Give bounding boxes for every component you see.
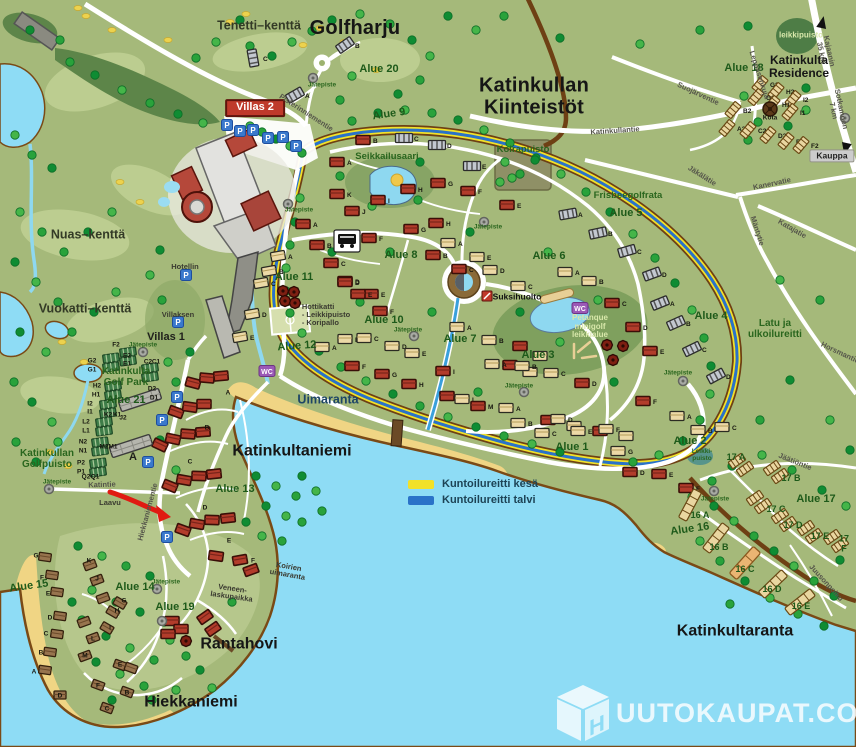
map-label: Q2 bbox=[82, 473, 91, 480]
map-label: Hiekkaniemi bbox=[144, 693, 237, 710]
map-label: H1 bbox=[92, 391, 100, 398]
map-label: E2 bbox=[123, 352, 131, 359]
map-label: I bbox=[109, 624, 111, 631]
map-label: Villaksen bbox=[162, 311, 194, 319]
map-label: Hottikatti - Leikkipuisto - Koripallo bbox=[302, 303, 350, 327]
map-label: P1 bbox=[77, 468, 85, 475]
map-label: Leikki- puisto bbox=[692, 448, 713, 462]
map-label: Jätepiste bbox=[43, 478, 71, 485]
map-label: N1 bbox=[79, 447, 87, 454]
map-label: C bbox=[188, 458, 193, 465]
map-label: E bbox=[227, 537, 231, 544]
map-label: Kauppa bbox=[809, 149, 854, 162]
map-label: C bbox=[105, 705, 110, 712]
map-label: Alue 6 bbox=[532, 251, 565, 263]
map-label: J2 bbox=[119, 414, 126, 421]
map-label: Koirapuisto bbox=[497, 145, 550, 155]
map-label: Katinkullan Kiinteistöt bbox=[479, 75, 589, 118]
map-label: Jätepiste bbox=[505, 382, 533, 389]
map-canvas: BCABACDEGHFKIJEABCDEFGHABCDEABCDABCDABCC… bbox=[0, 0, 856, 747]
map-label: Alue 11 bbox=[275, 272, 314, 284]
map-label: Veneen- laskupaikka bbox=[210, 582, 254, 604]
logo-cube-icon: H bbox=[556, 684, 610, 742]
map-label: Alue 17 bbox=[796, 494, 835, 506]
trail-legend: Kuntoilureitti kesä Kuntoilureitti talvi bbox=[408, 478, 538, 510]
map-label: F2 bbox=[112, 341, 120, 348]
map-label: Katinkulta Residence bbox=[769, 54, 829, 80]
map-label: M1 bbox=[108, 443, 117, 450]
map-label: Alue 15 bbox=[9, 578, 49, 595]
map-label: Suojärventie bbox=[676, 81, 720, 107]
map-label: B bbox=[39, 649, 44, 656]
map-label: leikkipuisto bbox=[779, 32, 823, 41]
map-label: Villas 1 bbox=[147, 332, 185, 344]
map-label: Alue 2 bbox=[673, 436, 706, 448]
map-label: F bbox=[251, 557, 255, 564]
map-label: L2 bbox=[82, 418, 90, 425]
map-labels-layer: GolfharjuTenetti–kenttäAlue 20Katinkulla… bbox=[0, 0, 856, 747]
map-label: Koirien uimaranta bbox=[269, 560, 307, 582]
map-label: Kanervatie bbox=[752, 176, 791, 192]
map-label: 17 A bbox=[727, 453, 746, 463]
map-label: Suksihuolto bbox=[493, 292, 542, 301]
map-label: 17 D bbox=[783, 521, 802, 531]
map-label: Katinkultaranta bbox=[677, 622, 793, 639]
map-label: Juusonpolku bbox=[807, 563, 844, 603]
map-label: Hiekkaniementie bbox=[136, 482, 159, 541]
map-label: 16 E bbox=[792, 602, 811, 612]
map-label: Pisterinniementie bbox=[278, 93, 335, 134]
map-label: K1 bbox=[113, 411, 121, 418]
map-label: Jätepiste bbox=[664, 369, 692, 376]
map-label: H2 bbox=[93, 382, 101, 389]
map-label: Jätepiste bbox=[129, 341, 157, 348]
legend-winter-label: Kuntoilureitti talvi bbox=[442, 494, 536, 506]
map-label: Laavu bbox=[99, 499, 121, 507]
summer-trail-swatch bbox=[408, 480, 434, 489]
map-label: A bbox=[129, 452, 137, 464]
map-label: Alue 12 bbox=[277, 340, 317, 355]
map-label: 17 E bbox=[811, 532, 830, 542]
map-label: A bbox=[226, 389, 231, 396]
map-label: Katinkullan Golfpuisto bbox=[20, 449, 74, 471]
map-label: Latu ja ulkoilureitti bbox=[748, 319, 802, 341]
map-label: Alue 16 bbox=[670, 521, 710, 538]
map-label: D1 bbox=[150, 394, 158, 401]
map-label: Jäkälätie bbox=[686, 164, 717, 188]
map-label: Jätepiste bbox=[701, 495, 729, 502]
map-label: E1 bbox=[123, 360, 131, 367]
map-label: Vuokatti–kenttä bbox=[39, 302, 132, 316]
legend-winter-row: Kuntoilureitti talvi bbox=[408, 494, 538, 506]
map-label: C2 bbox=[144, 358, 152, 365]
map-label: Alue 13 bbox=[215, 484, 254, 496]
map-label: Rantahovi bbox=[200, 635, 277, 652]
map-label: 16 C bbox=[735, 565, 754, 575]
map-label: 17 C bbox=[766, 505, 785, 515]
map-label: Alue 3 bbox=[521, 350, 554, 362]
legend-summer-row: Kuntoilureitti kesä bbox=[408, 478, 538, 490]
map-label: D bbox=[203, 504, 208, 511]
map-label: G bbox=[121, 597, 126, 604]
map-label: Kota bbox=[763, 114, 777, 121]
winter-trail-swatch bbox=[408, 496, 434, 505]
map-label: Alue 20 bbox=[359, 64, 398, 76]
map-label: Jätepiste bbox=[152, 578, 180, 585]
map-label: Horsmantie bbox=[820, 341, 856, 366]
map-label: Seikkailusaari bbox=[355, 152, 418, 162]
map-label: 16 D bbox=[762, 585, 781, 595]
map-label: Katajatie bbox=[776, 218, 807, 241]
map-label: D bbox=[48, 614, 53, 621]
map-label: Jätepiste bbox=[474, 223, 502, 230]
map-label: M2 bbox=[99, 443, 108, 450]
map-label: 17 B bbox=[781, 474, 800, 484]
logo-text: UUTOKAUPAT.COM bbox=[616, 698, 856, 729]
map-label: Tenetti–kenttä bbox=[217, 19, 301, 33]
map-label: I1 bbox=[87, 408, 92, 415]
map-label: Hotellin bbox=[171, 263, 199, 271]
map-label: C1 bbox=[152, 358, 160, 365]
map-label: 16 B bbox=[709, 543, 728, 553]
map-label: L bbox=[91, 635, 95, 642]
legend-summer-label: Kuntoilureitti kesä bbox=[442, 478, 538, 490]
map-label: Alue 9 bbox=[372, 107, 406, 123]
map-label: Jätepiste bbox=[394, 326, 422, 333]
map-label: Jäätiöntie bbox=[777, 452, 812, 473]
map-label: Alue 14 bbox=[115, 582, 154, 594]
map-label: Petanque minigolf leikkialue bbox=[572, 314, 608, 340]
map-label: Katinkultaniemi bbox=[232, 442, 351, 459]
map-label: Kajaanin 35 km bbox=[814, 35, 836, 69]
map-label: Jätepiste bbox=[308, 81, 336, 88]
map-label: 16 A bbox=[691, 511, 710, 521]
map-label: Alue 19 bbox=[155, 602, 194, 614]
map-label: J bbox=[95, 575, 99, 582]
map-label: Alue 4 bbox=[694, 311, 727, 323]
map-label: I2 bbox=[87, 400, 92, 407]
map-label: Alue 10 bbox=[364, 315, 403, 327]
map-label: Katinkullantie bbox=[590, 125, 640, 137]
map-label: A bbox=[32, 668, 37, 675]
map-label: Uimaranta bbox=[297, 393, 358, 407]
map-label: 17 F bbox=[838, 534, 850, 553]
map-label: Katintie bbox=[88, 480, 116, 489]
map-label: K2 bbox=[104, 411, 112, 418]
map-label: Q1 bbox=[91, 473, 100, 480]
map-label: G bbox=[33, 552, 38, 559]
map-label: M bbox=[82, 652, 87, 659]
map-label: Golfharju bbox=[310, 18, 401, 40]
map-label: F bbox=[40, 574, 44, 581]
map-label: Alue 1 bbox=[555, 442, 588, 454]
map-label: E bbox=[46, 590, 50, 597]
map-label: Villas 2 bbox=[225, 99, 285, 117]
map-label: Jätepiste bbox=[285, 206, 313, 213]
map-label: D2 bbox=[148, 385, 156, 392]
map-label: Sotkamoon 7 km bbox=[825, 88, 849, 131]
map-label: E bbox=[118, 661, 122, 668]
map-label: N2 bbox=[79, 438, 87, 445]
map-label: Alue 18 bbox=[724, 63, 763, 75]
map-label: Nuas–kenttä bbox=[51, 228, 125, 242]
map-label: Alue 21 bbox=[106, 395, 145, 407]
huutokaupat-logo: H UUTOKAUPAT.COM bbox=[556, 684, 856, 742]
map-label: L1 bbox=[82, 427, 90, 434]
map-label: F bbox=[96, 682, 100, 689]
map-label: G1 bbox=[88, 366, 97, 373]
map-label: D bbox=[58, 692, 63, 699]
map-label: Mäntytie bbox=[748, 215, 765, 246]
map-label: H bbox=[115, 607, 120, 614]
map-label: C bbox=[44, 630, 49, 637]
map-label: Alue 7 bbox=[443, 334, 476, 346]
map-label: Katinkulta Golf Park bbox=[102, 367, 150, 389]
map-label: G2 bbox=[88, 357, 97, 364]
map-label: K bbox=[87, 557, 92, 564]
map-label: Leppäsenkuja bbox=[747, 50, 770, 100]
map-label: B bbox=[205, 424, 210, 431]
map-label: Alue 8 bbox=[384, 250, 417, 262]
map-label: Alue 5 bbox=[609, 208, 642, 220]
map-label: Frisbeegolfrata bbox=[594, 191, 663, 201]
map-label: B bbox=[125, 689, 130, 696]
map-label: P2 bbox=[77, 459, 85, 466]
